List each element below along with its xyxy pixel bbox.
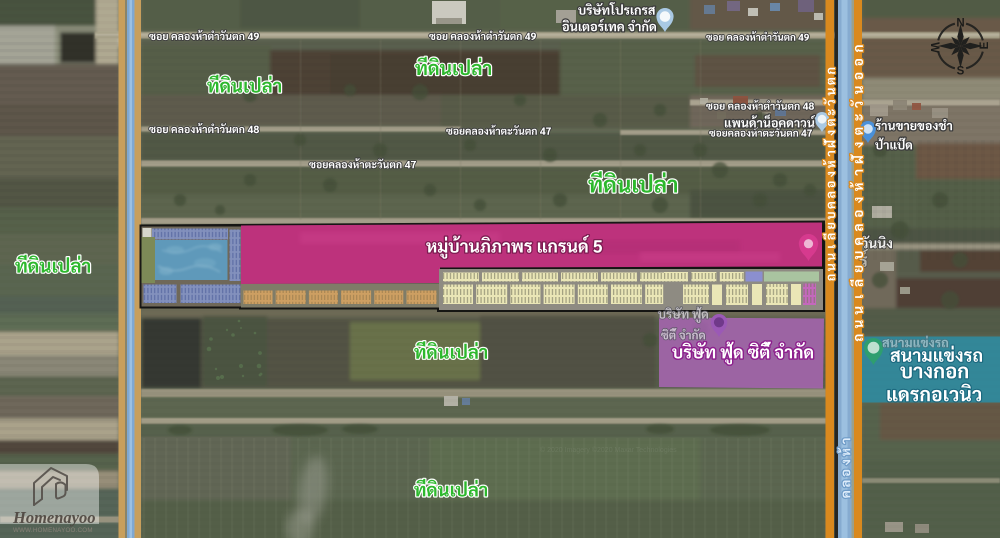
svg-text:E: E [979,41,991,49]
svg-text:Homenayoo: Homenayoo [12,508,96,527]
svg-text:WWW.HOMENAYOO.COM: WWW.HOMENAYOO.COM [13,527,93,534]
svg-text:W: W [928,42,940,53]
svg-text:© 2020 Imagery ©2020 Maxar Te: © 2020 Imagery ©2020 Maxar Technologies [540,446,677,454]
svg-text:S: S [957,66,965,78]
svg-text:N: N [956,18,964,30]
